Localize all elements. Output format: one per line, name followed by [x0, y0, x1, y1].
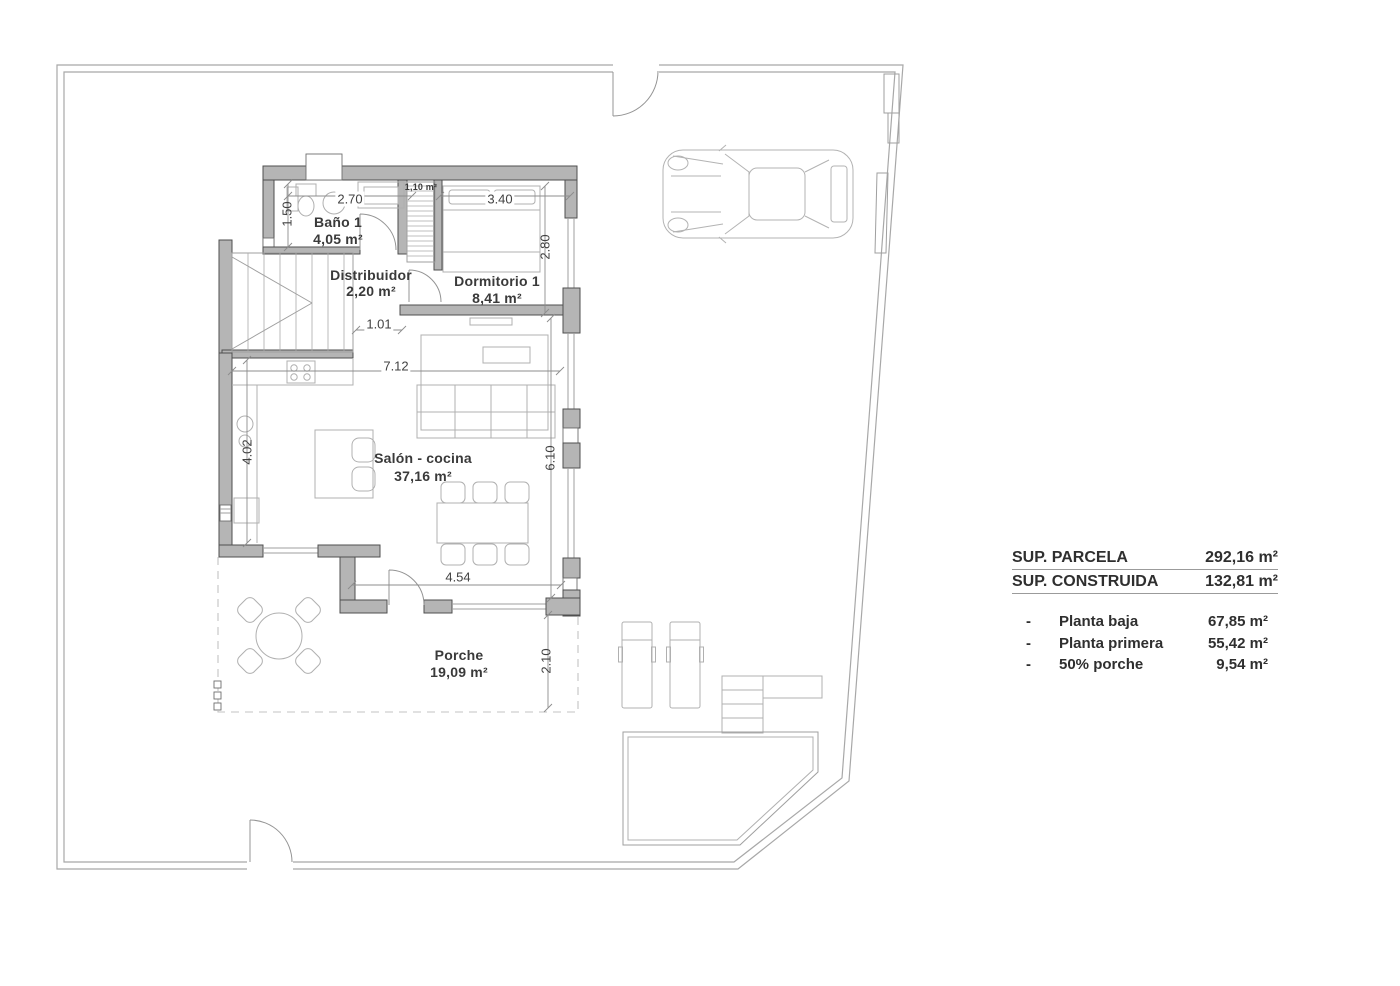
- window: [568, 333, 574, 409]
- summary-label: SUP. PARCELA: [1012, 546, 1128, 569]
- summary-item-planta-primera: - Planta primera 55,42 m²: [1012, 633, 1278, 655]
- summary-label: SUP. CONSTRUIDA: [1012, 570, 1158, 593]
- toilet: [298, 196, 314, 216]
- bedroom-door: [409, 270, 441, 302]
- summary-value: 67,85 m²: [1208, 611, 1278, 633]
- kitchen-island: [315, 430, 373, 498]
- floor-plan-drawing: [0, 0, 1400, 986]
- chair: [293, 646, 323, 676]
- garden: [619, 622, 823, 845]
- stool: [352, 467, 375, 491]
- chair: [235, 646, 265, 676]
- car-illustration: [663, 145, 853, 243]
- room-label-bano: Baño 1: [314, 214, 362, 230]
- chair: [473, 544, 497, 565]
- closet: [407, 182, 435, 262]
- pool-steps: [722, 676, 822, 733]
- chair: [293, 595, 323, 625]
- post-marker: [214, 692, 221, 699]
- room-label-distribuidor: Distribuidor: [330, 267, 412, 283]
- dim-salon-right-height: 6.10: [543, 443, 558, 472]
- room-area-dormitorio: 8,41 m²: [472, 290, 522, 306]
- dim-dorm-width: 3.40: [485, 192, 514, 207]
- summary-value: 9,54 m²: [1216, 654, 1278, 676]
- dim-porche-width: 4.54: [443, 570, 472, 585]
- summary-item-porche: - 50% porche 9,54 m²: [1012, 654, 1278, 676]
- dim-salon-left-height: 4.02: [240, 437, 255, 466]
- room-area-porche: 19,09 m²: [430, 664, 488, 680]
- summary-value: 292,16 m²: [1205, 546, 1278, 569]
- bullet: -: [1026, 633, 1059, 655]
- room-area-distribuidor: 2,20 m²: [346, 283, 396, 299]
- window: [263, 548, 318, 553]
- coffee-table: [483, 347, 530, 363]
- dim-bano-height: 1.50: [280, 199, 295, 228]
- summary-row-construida: SUP. CONSTRUIDA 132,81 m²: [1012, 570, 1278, 594]
- glass-doors: [452, 604, 546, 609]
- summary-value: 132,81 m²: [1205, 570, 1278, 593]
- chair: [505, 482, 529, 503]
- dim-dorm-height: 2.80: [538, 232, 553, 261]
- post-marker: [214, 703, 221, 710]
- pillow: [449, 190, 490, 204]
- window: [568, 218, 574, 288]
- dining-table: [437, 503, 528, 543]
- surface-summary-table: SUP. PARCELA 292,16 m² SUP. CONSTRUIDA 1…: [1012, 546, 1278, 676]
- window-sill: [470, 318, 512, 325]
- dim-bano-width: 2.70: [335, 192, 364, 207]
- summary-value: 55,42 m²: [1208, 633, 1278, 655]
- dim-salon-width: 7.12: [381, 359, 410, 374]
- sink: [237, 416, 253, 432]
- window: [568, 468, 574, 558]
- chair: [441, 482, 465, 503]
- bullet: -: [1026, 611, 1059, 633]
- rug: [421, 335, 548, 430]
- bullet: -: [1026, 654, 1059, 676]
- room-label-salon: Salón - cocina: [374, 450, 472, 466]
- room-label-porche: Porche: [435, 647, 484, 663]
- top-gate: [613, 71, 658, 116]
- dim-passage-width: 1.01: [364, 317, 393, 332]
- sun-lounger: [619, 622, 656, 708]
- summary-label: 50% porche: [1059, 654, 1216, 676]
- summary-item-planta-baja: - Planta baja 67,85 m²: [1012, 611, 1278, 633]
- post-marker: [214, 681, 221, 688]
- room-area-bano: 4,05 m²: [313, 231, 363, 247]
- chair: [505, 544, 529, 565]
- porch: [214, 557, 578, 712]
- sun-lounger: [667, 622, 704, 708]
- room-label-dormitorio: Dormitorio 1: [454, 273, 540, 289]
- summary-row-parcela: SUP. PARCELA 292,16 m²: [1012, 546, 1278, 570]
- dim-porche-depth: 2.10: [539, 646, 554, 675]
- toilet-tank: [296, 184, 316, 196]
- chair: [441, 544, 465, 565]
- porch-door: [389, 570, 424, 605]
- room-area-salon: 37,16 m²: [394, 468, 452, 484]
- bottom-gate: [250, 820, 292, 862]
- chimney: [306, 154, 342, 180]
- floor-plan-page: Baño 1 4,05 m² Distribuidor 2,20 m² Dorm…: [0, 0, 1400, 986]
- stool: [352, 438, 375, 462]
- chair: [235, 595, 265, 625]
- chair: [473, 482, 497, 503]
- closet-area-label: 1,10 m²: [405, 182, 437, 192]
- summary-items: - Planta baja 67,85 m² - Planta primera …: [1012, 611, 1278, 676]
- bathroom-door: [360, 214, 396, 250]
- porch-outline: [218, 557, 578, 712]
- summary-label: Planta baja: [1059, 611, 1208, 633]
- appliance: [234, 498, 259, 523]
- round-table: [256, 613, 302, 659]
- summary-label: Planta primera: [1059, 633, 1208, 655]
- cooktop: [287, 361, 315, 383]
